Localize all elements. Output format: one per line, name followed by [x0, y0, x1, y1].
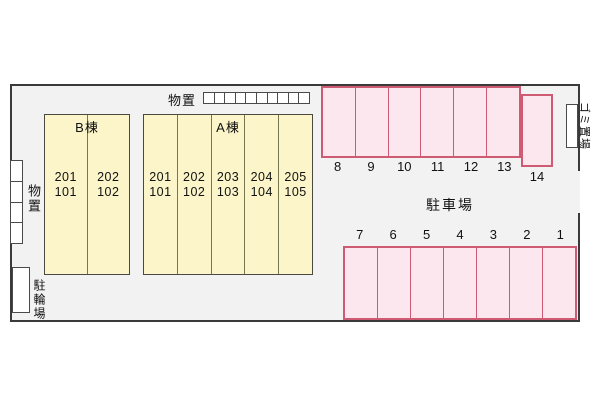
parking-number: 1 [544, 227, 577, 242]
parking-spot-2 [510, 248, 543, 318]
unit-numbers: 203 103 [212, 170, 245, 200]
parking-number: 14 [521, 169, 553, 184]
storage-box [278, 93, 289, 103]
parking-number: 8 [321, 159, 354, 174]
parking-spot-13 [487, 88, 519, 156]
parking-spot-1 [543, 248, 575, 318]
parking-spot-14 [521, 94, 553, 167]
parking-number: 6 [376, 227, 409, 242]
bicycle-parking-label: 駐輪場 [31, 279, 48, 321]
parking-number: 5 [410, 227, 443, 242]
storage-box [289, 93, 300, 103]
unit-number-upper: 201 [144, 170, 177, 185]
bicycle-parking-box [12, 267, 30, 313]
unit-number-upper: 205 [279, 170, 312, 185]
parking-number: 9 [354, 159, 387, 174]
storage-box [257, 93, 268, 103]
unit-number-lower: 103 [212, 185, 245, 200]
building-b-label: B棟 [44, 117, 130, 136]
unit-numbers: 202 102 [88, 170, 130, 200]
parking-number: 2 [510, 227, 543, 242]
parking-spot-5 [411, 248, 444, 318]
building-a-unit: 202 102 [178, 115, 212, 274]
parking-spot-3 [477, 248, 510, 318]
parking-spot-8 [323, 88, 356, 156]
unit-number-lower: 104 [245, 185, 278, 200]
storage-box [246, 93, 257, 103]
parking-spot-11 [421, 88, 454, 156]
storage-left-boxes [10, 160, 23, 244]
storage-box [11, 182, 22, 203]
unit-number-lower: 101 [45, 185, 87, 200]
parking-spot-6 [378, 248, 411, 318]
storage-left-label: 物置 [24, 184, 43, 214]
building-a-unit: 205 105 [279, 115, 312, 274]
parking-row-bottom [343, 246, 577, 320]
unit-numbers: 204 104 [245, 170, 278, 200]
building-b-unit: 201 101 [45, 115, 88, 274]
unit-number-lower: 101 [144, 185, 177, 200]
building-a-unit: 204 104 [245, 115, 279, 274]
building-a: 201 101 202 102 203 103 204 104 205 [143, 114, 313, 275]
storage-top-label: 物置 [168, 90, 196, 109]
parking-number: 12 [454, 159, 487, 174]
parking-spot-12 [454, 88, 487, 156]
storage-box [299, 93, 309, 103]
building-a-unit: 201 101 [144, 115, 178, 274]
parking-number: 13 [488, 159, 521, 174]
unit-numbers: 202 102 [178, 170, 211, 200]
storage-box [204, 93, 215, 103]
parking-number: 11 [421, 159, 454, 174]
unit-number-lower: 102 [178, 185, 211, 200]
parking-top-numbers: 8 9 10 11 12 13 [321, 159, 521, 174]
parking-number: 7 [343, 227, 376, 242]
parking-number: 10 [388, 159, 421, 174]
unit-number-lower: 105 [279, 185, 312, 200]
garbage-area-label: ゴミ置場 [577, 102, 593, 150]
unit-number-upper: 201 [45, 170, 87, 185]
unit-number-upper: 202 [88, 170, 130, 185]
unit-number-upper: 202 [178, 170, 211, 185]
unit-number-lower: 102 [88, 185, 130, 200]
parking-spot-4 [444, 248, 477, 318]
storage-box [11, 161, 22, 182]
storage-box [215, 93, 226, 103]
parking-bottom-numbers: 7 6 5 4 3 2 1 [343, 227, 577, 242]
unit-numbers: 201 101 [45, 170, 87, 200]
unit-numbers: 201 101 [144, 170, 177, 200]
unit-numbers: 205 105 [279, 170, 312, 200]
storage-box [11, 223, 22, 243]
parking-spot-7 [345, 248, 378, 318]
parking-number: 3 [477, 227, 510, 242]
storage-box [225, 93, 236, 103]
storage-top-boxes [203, 92, 310, 104]
parking-number: 4 [443, 227, 476, 242]
building-a-unit: 203 103 [212, 115, 246, 274]
site-entrance-gap [577, 171, 580, 213]
building-b: 201 101 202 102 [44, 114, 130, 275]
parking-spot-9 [356, 88, 389, 156]
parking-spot-10 [389, 88, 422, 156]
unit-number-upper: 204 [245, 170, 278, 185]
storage-box [11, 203, 22, 224]
building-b-unit: 202 102 [88, 115, 130, 274]
storage-box [236, 93, 247, 103]
building-a-label: A棟 [143, 117, 313, 136]
unit-number-upper: 203 [212, 170, 245, 185]
storage-box [268, 93, 279, 103]
site-plan-canvas: 物置 物置 駐輪場 ゴミ置場 201 101 202 [0, 0, 600, 400]
parking-lot-label: 駐車場 [405, 195, 495, 215]
parking-row-top [321, 86, 521, 158]
